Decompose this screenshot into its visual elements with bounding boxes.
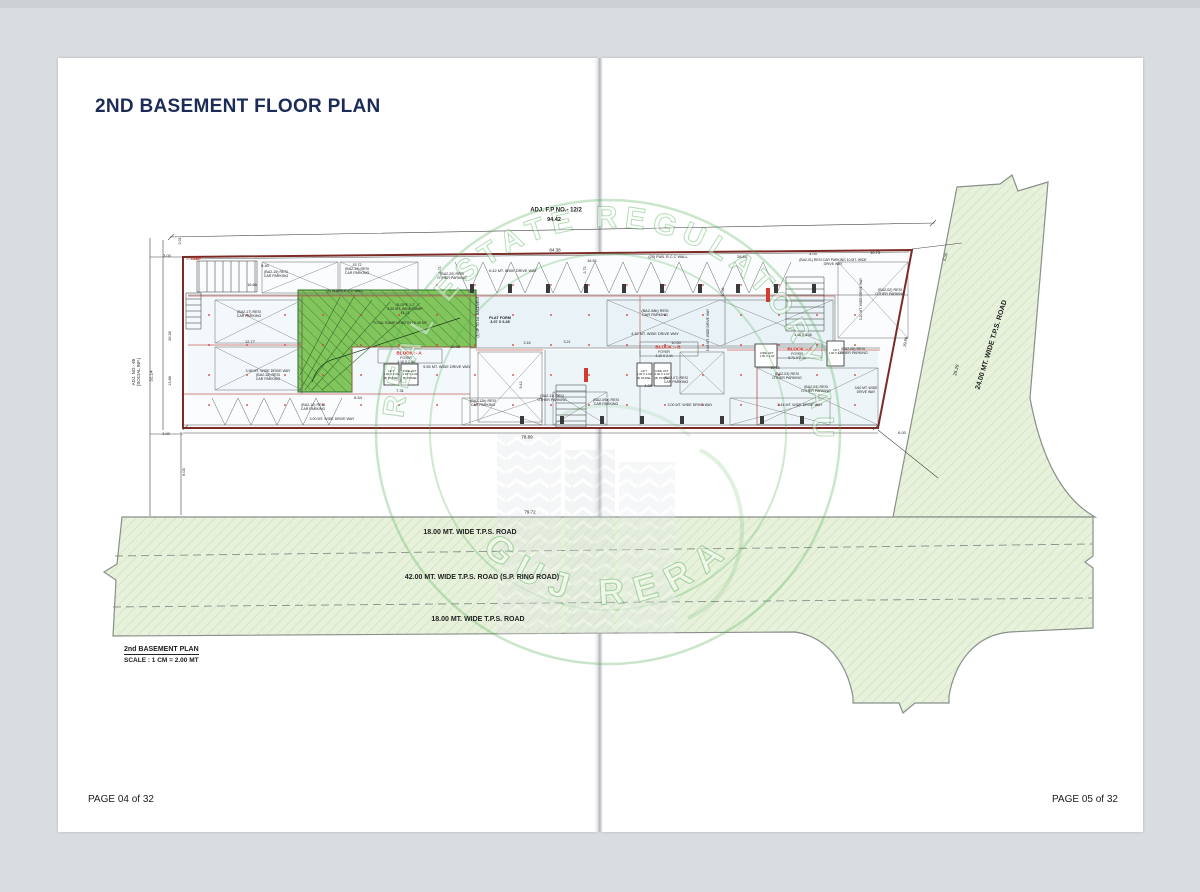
page-number-left: PAGE 04 of 32 — [88, 794, 154, 805]
page-number-right: PAGE 05 of 32 — [1052, 794, 1118, 805]
road-tps-24m — [893, 175, 1095, 517]
scanned-document-spread: 2ND BASEMENT FLOOR PLAN — [0, 0, 1200, 892]
floor-plan-drawing: GUJARAT REAL ESTATE REGULATORY AUTHORITY… — [0, 0, 1200, 892]
plan-name-label: 2nd BASEMENT PLAN — [124, 646, 199, 655]
scale-box: 2nd BASEMENT PLAN SCALE : 1 CM = 2.00 MT — [124, 646, 199, 664]
scale-label: SCALE : 1 CM = 2.00 MT — [124, 657, 199, 664]
